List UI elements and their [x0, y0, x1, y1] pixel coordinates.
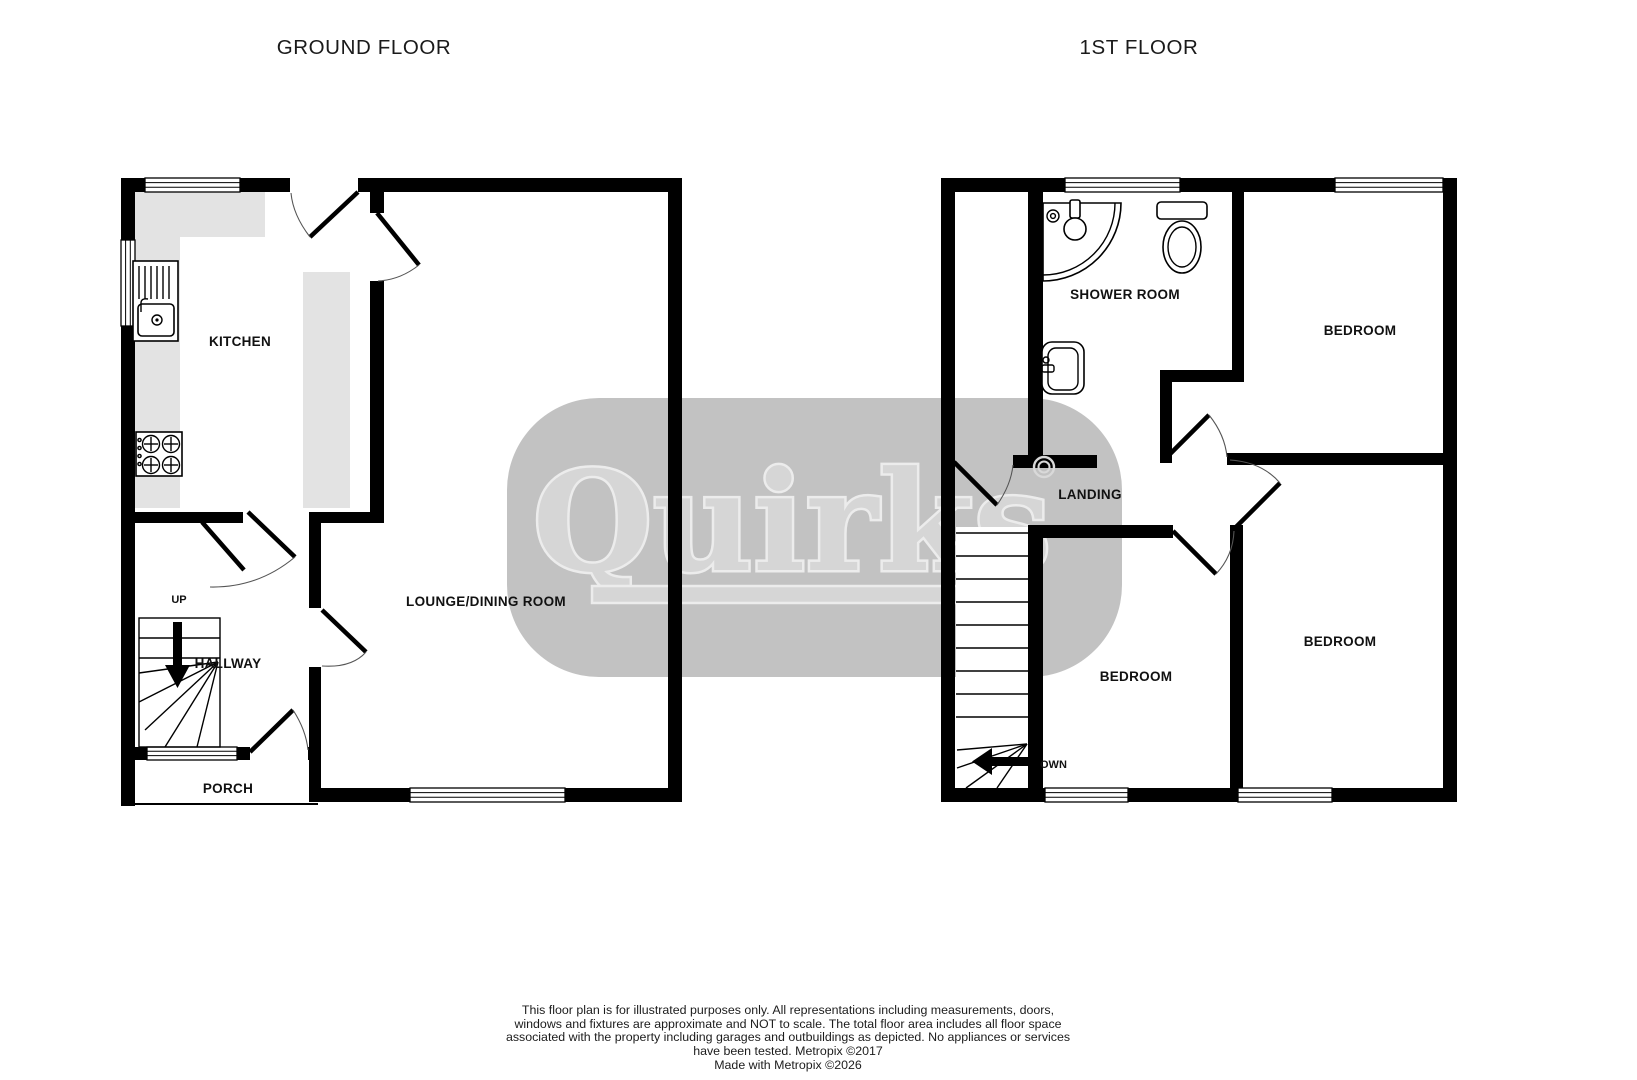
- window: [410, 788, 565, 802]
- disclaimer-line: Made with Metropix ©2026: [714, 1058, 862, 1072]
- bedrooms-divider: [1230, 525, 1243, 788]
- disclaimer-line: associated with the property including g…: [506, 1030, 1070, 1044]
- hall-lounge-divider-upper: [309, 512, 321, 608]
- disclaimer-line: windows and fixtures are approximate and…: [513, 1017, 1061, 1031]
- stairwell-wall-upper: [1028, 192, 1043, 468]
- staircase-up: [139, 618, 220, 747]
- kitchen-label: KITCHEN: [209, 334, 271, 349]
- floorplan-canvas: Quirks: [0, 0, 1637, 1080]
- back-door: [291, 192, 358, 237]
- back-bedroom-door: [1173, 460, 1280, 574]
- stairwell-wall-lower: [1028, 525, 1043, 788]
- lounge-label: LOUNGE/DINING ROOM: [406, 594, 566, 609]
- kitchen-lounge-stub: [370, 192, 384, 213]
- front-bedroom-bottom-wall: [1227, 453, 1457, 465]
- porch-label: PORCH: [203, 781, 253, 796]
- up-label: UP: [171, 594, 186, 606]
- front-bedroom-door: [1166, 415, 1227, 458]
- small-bedroom-top-wall: [1028, 525, 1173, 538]
- hall-lounge-divider-lower: [309, 667, 321, 802]
- window: [1045, 788, 1128, 802]
- first-floor-title: 1ST FLOOR: [1080, 36, 1199, 59]
- wash-basin: [1042, 342, 1084, 394]
- disclaimer: This floor plan is for illustrated purpo…: [506, 1003, 1070, 1072]
- hob: [136, 432, 182, 476]
- kitchen-lounge-divider: [370, 281, 384, 523]
- toilet: [1157, 202, 1207, 273]
- window: [147, 747, 237, 760]
- window: [1335, 178, 1443, 192]
- watermark-underline: [592, 586, 1020, 603]
- down-label: OWN: [1040, 759, 1067, 771]
- window: [145, 178, 240, 192]
- porch-door: [250, 710, 308, 752]
- kitchen-bottom-wall: [122, 512, 243, 523]
- shower-room-label: SHOWER ROOM: [1070, 287, 1180, 302]
- window: [1065, 178, 1180, 192]
- kitchen-sink: [133, 261, 178, 341]
- front-bedroom-label: BEDROOM: [1324, 323, 1397, 338]
- kitchen-lounge-door: [377, 213, 419, 281]
- landing-label: LANDING: [1058, 487, 1122, 502]
- hallway-label: HALLWAY: [195, 656, 262, 671]
- porch-door-gap: [250, 747, 308, 760]
- small-bedroom-label: BEDROOM: [1100, 669, 1173, 684]
- ground-floor-title: GROUND FLOOR: [277, 36, 452, 59]
- shower-bedroom-divider: [1232, 192, 1244, 382]
- disclaimer-line: This floor plan is for illustrated purpo…: [522, 1003, 1054, 1017]
- window: [1238, 788, 1332, 802]
- back-bedroom-label: BEDROOM: [1304, 634, 1377, 649]
- lounge-door: [322, 610, 366, 666]
- floorplan-page: Quirks: [0, 0, 1637, 1080]
- shower-enclosure: [1043, 200, 1121, 281]
- disclaimer-line: have been tested. Metropix ©2017: [693, 1044, 883, 1058]
- kitchen-hall-door: [202, 512, 295, 587]
